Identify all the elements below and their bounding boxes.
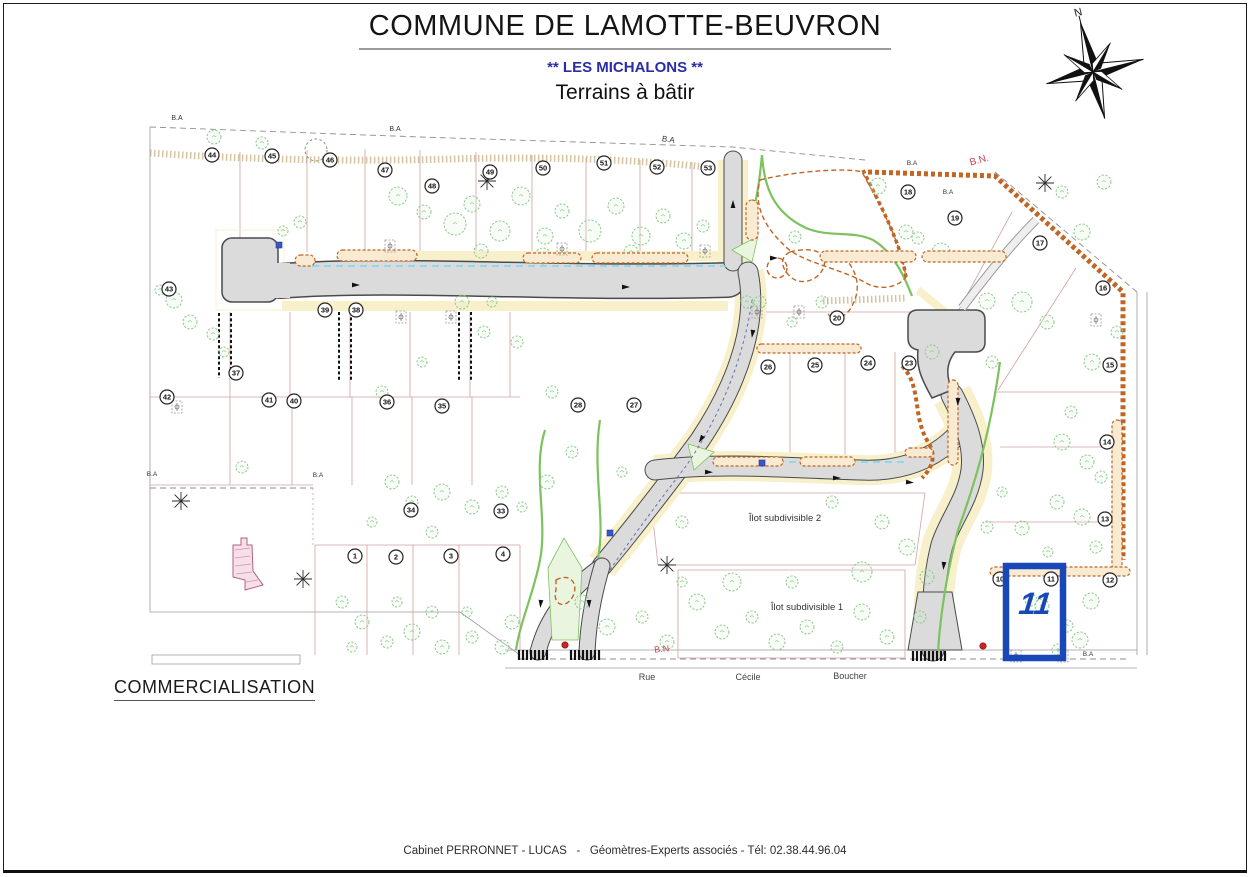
plot-number-51: 51 [597,156,611,170]
svg-text:12: 12 [1106,576,1114,585]
plot-number-24: 24 [861,356,875,370]
svg-text:19: 19 [951,214,959,223]
plot-number-52: 52 [650,160,664,174]
svg-text:18: 18 [904,188,912,197]
tree-icon [608,198,624,214]
svg-text:39: 39 [321,306,329,315]
svg-text:41: 41 [265,396,273,405]
svg-text:27: 27 [630,401,638,410]
plot-number-48: 48 [425,179,439,193]
tree-icon [474,244,488,258]
tree-icon [1043,547,1053,557]
tree-icon [462,607,472,617]
svg-text:26: 26 [764,363,772,372]
tree-icon [537,228,553,244]
tree-icon [207,328,219,340]
plot-number-11: 11 [1044,572,1058,586]
tree-icon [555,204,569,218]
tree-icon [355,615,369,629]
tree-icon [256,137,268,149]
hydrant-icon [980,643,986,649]
tree-icon [466,631,478,643]
tree-icon [986,356,998,368]
tree-icon [1111,326,1123,338]
svg-text:46: 46 [326,156,334,165]
plot-number-40: 40 [287,394,301,408]
tree-icon [997,487,1007,497]
sign-icon [607,530,613,536]
tree-icon [381,636,393,648]
svg-text:24: 24 [864,359,873,368]
tree-icon [831,641,843,653]
tree-icon [1083,593,1099,609]
svg-text:13: 13 [1101,515,1109,524]
traffic-arrow-icon [770,256,778,261]
tree-icon [417,205,431,219]
hedge-strip [746,200,758,240]
plot-number-14: 14 [1100,435,1114,449]
hedge-strip [922,251,1006,262]
tree-icon [236,461,248,473]
plot-number-46: 46 [323,153,337,167]
tree-icon [575,595,589,609]
tree-icon [723,573,741,591]
tree-icon [1056,186,1068,198]
tree-icon [579,220,601,242]
svg-text:53: 53 [704,164,712,173]
hedge-strip [337,250,417,261]
tree-icon [294,216,306,228]
tree-icon [826,496,838,508]
tree-icon [1080,455,1094,469]
plot-number-20: 20 [830,311,844,325]
plot-number-39: 39 [318,303,332,317]
hedge-strip [295,255,315,266]
tree-icon [490,221,510,241]
svg-text:38: 38 [352,306,360,315]
tree-icon [1095,471,1107,483]
map-label: B.A [147,471,158,478]
svg-text:42: 42 [163,393,171,402]
conifer-icon [658,556,676,574]
tree-icon [455,295,469,309]
map-label: B.N. [968,153,990,169]
map-label: Îlot subdivisible 1 [770,602,843,613]
tree-icon [599,619,615,635]
compass-rose-icon: N [1030,0,1155,130]
map-label: B.A [943,189,954,196]
svg-text:23: 23 [905,359,913,368]
hedge-strip [592,253,688,263]
plot-number-49: 49 [483,165,497,179]
plot-number-4: 4 [496,547,510,561]
hedge-strip [905,448,933,457]
plot-number-28: 28 [571,398,585,412]
tree-icon [914,611,926,623]
tree-icon [1072,632,1088,648]
tree-icon [435,640,449,654]
svg-text:2: 2 [394,553,398,562]
tree-icon [769,634,785,650]
tree-icon [540,475,554,489]
footer-credit: Cabinet PERRONNET - LUCAS - Géomètres-Ex… [0,845,1250,857]
tree-icon [632,227,650,245]
svg-text:1: 1 [353,552,357,561]
hedge-strip [757,344,861,353]
plot-number-36: 36 [380,395,394,409]
sign-icon [276,242,282,248]
plot-number-44: 44 [205,148,219,162]
plot-number-1: 1 [348,549,362,563]
tree-icon [444,213,466,235]
map-label: B.A [171,115,183,122]
svg-text:20: 20 [833,314,841,323]
tree-icon [816,296,828,308]
map-label: Îlot subdivisible 2 [748,513,821,524]
tree-icon [899,539,915,555]
tree-icon [512,187,530,205]
tree-icon [505,615,519,629]
svg-text:34: 34 [407,506,416,515]
tree-icon [496,486,508,498]
trees-layer [155,130,1123,656]
tree-icon [875,515,889,529]
tree-icon [487,297,497,307]
traffic-arrow-icon [906,480,914,485]
tree-icon [800,620,814,634]
plot-number-15: 15 [1103,358,1117,372]
hedge-strip [948,380,958,465]
tree-icon [1054,434,1070,450]
plot-number-43: 43 [162,282,176,296]
tree-icon [566,446,578,458]
svg-text:14: 14 [1103,438,1112,447]
tree-icon [689,594,705,610]
plot-number-18: 18 [901,185,915,199]
plot-number-3: 3 [444,549,458,563]
plan-page: COMMUNE DE LAMOTTE-BEUVRON ** LES MICHAL… [0,0,1250,877]
plot-number-19: 19 [948,211,962,225]
tree-icon [465,500,479,514]
conifer-icon [294,570,312,588]
conifer-icon [1036,174,1054,192]
tree-icon [636,611,648,623]
plot-number-17: 17 [1033,236,1047,250]
map-label: B.A [661,134,676,145]
tree-icon [278,226,288,236]
tree-icon [787,317,797,327]
plot-number-34: 34 [404,503,418,517]
tree-icon [1074,509,1090,525]
svg-text:3: 3 [449,552,453,561]
map-label: B.N [654,643,670,655]
svg-text:33: 33 [497,507,505,516]
svg-text:44: 44 [208,151,217,160]
turnaround-east [908,310,985,398]
tree-icon [517,502,527,512]
svg-text:48: 48 [428,182,436,191]
svg-text:40: 40 [290,397,298,406]
plot-number-26: 26 [761,360,775,374]
plot-number-2: 2 [389,550,403,564]
svg-text:51: 51 [600,159,608,168]
tree-icon [656,209,670,223]
tree-icon [511,336,523,348]
tree-icon [426,606,438,618]
svg-text:50: 50 [539,164,547,173]
plot-number-35: 35 [435,399,449,413]
tree-icon [464,196,480,212]
tree-icon [741,296,753,308]
tree-icon [546,386,558,398]
tree-icon [426,526,438,538]
tree-icon [347,642,357,652]
tree-icon [979,293,995,309]
servitude-marks [219,312,471,380]
svg-text:35: 35 [438,402,446,411]
hedge-strip [820,251,916,262]
hedge-strip [800,457,855,466]
plot-number-42: 42 [160,390,174,404]
svg-text:17: 17 [1036,239,1044,248]
tree-icon [417,357,427,367]
tree-icon [1012,292,1032,312]
tree-icon [677,577,687,587]
svg-text:11: 11 [1047,575,1055,584]
tree-icon [1040,315,1054,329]
tree-icon [854,604,870,620]
svg-text:43: 43 [165,285,173,294]
tree-icon [715,625,729,639]
tree-icon [786,576,798,588]
tree-icon [697,220,709,232]
svg-text:45: 45 [268,152,276,161]
map-label: Rue [639,672,656,682]
svg-text:36: 36 [383,398,391,407]
plot-number-16: 16 [1096,281,1110,295]
hedge-strip [713,457,783,466]
tree-icon [676,233,692,249]
svg-text:16: 16 [1099,284,1107,293]
commercialisation-label: COMMERCIALISATION [114,677,315,701]
svg-text:49: 49 [486,168,494,177]
hydrant-icon [562,642,568,648]
plot-number-53: 53 [701,161,715,175]
plot-number-27: 27 [627,398,641,412]
map-label: Cécile [735,672,760,682]
tree-icon [789,231,801,243]
tree-icon [880,630,894,644]
tree-icon [1084,354,1100,370]
plot-number-12: 12 [1103,573,1117,587]
tree-icon [852,562,872,582]
traffic-arrow-icon [538,600,543,608]
plot-number-13: 13 [1098,512,1112,526]
svg-text:52: 52 [653,163,661,172]
tree-icon [1090,541,1102,553]
plot-number-41: 41 [262,393,276,407]
existing-building [233,538,263,590]
tree-icon [392,597,402,607]
conifer-icon [172,492,190,510]
tree-icon [1050,495,1064,509]
tree-icon [404,624,420,640]
tree-icon [912,232,924,244]
tree-icon [746,611,758,623]
tree-icon [495,640,509,654]
plot-number-37: 37 [229,366,243,380]
compass-north-label: N [1073,6,1084,20]
map-label: B.A [313,472,324,479]
tree-icon [1015,521,1029,535]
tree-icon [920,570,934,584]
tree-icon [385,475,399,489]
tree-icon [336,596,348,608]
tree-icon [925,345,939,359]
tree-icon [1097,175,1111,189]
tree-icon [899,225,913,239]
plot-number-23: 23 [902,356,916,370]
plot-number-33: 33 [494,504,508,518]
tree-icon [183,315,197,329]
tree-icon [617,467,627,477]
tree-icon [870,178,886,194]
svg-text:28: 28 [574,401,582,410]
svg-text:47: 47 [381,166,389,175]
tree-icon [676,516,688,528]
tree-icon [981,521,993,533]
plot-number-50: 50 [536,161,550,175]
svg-text:37: 37 [232,369,240,378]
plot-number-45: 45 [265,149,279,163]
map-label: B.A [389,126,401,133]
tree-icon [478,326,490,338]
tree-icon [1074,224,1090,240]
svg-text:15: 15 [1106,361,1114,370]
tree-icon [434,484,450,500]
plot-number-25: 25 [808,358,822,372]
plot-number-38: 38 [349,303,363,317]
svg-text:25: 25 [811,361,819,370]
sign-icon [759,460,765,466]
tree-icon [367,517,377,527]
map-label: B.A [1083,651,1094,658]
highlighted-lot-number: 11 [1017,586,1053,621]
tree-icon [1065,406,1077,418]
map-label: B.A [907,160,918,167]
tree-icon [389,187,407,205]
tree-icon [219,347,229,357]
map-label: Boucher [833,671,867,681]
site-plan-map: N [0,0,1250,877]
plot-number-47: 47 [378,163,392,177]
hedge-strip [523,253,581,263]
tree-icon [207,130,221,144]
